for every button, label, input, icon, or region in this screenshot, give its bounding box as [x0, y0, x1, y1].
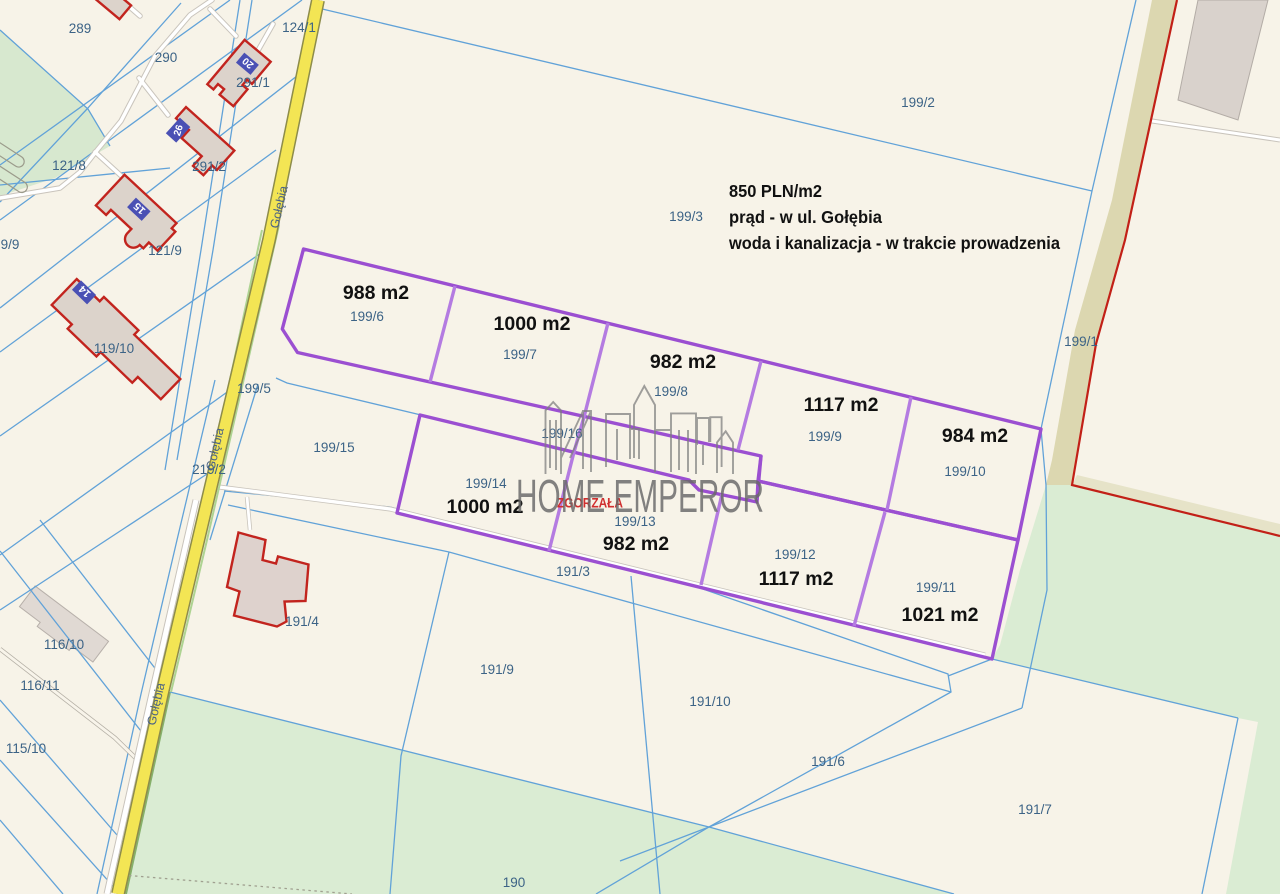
- svg-text:199/6: 199/6: [350, 309, 384, 324]
- svg-text:190: 190: [503, 875, 526, 890]
- svg-text:1117 m2: 1117 m2: [759, 568, 834, 590]
- svg-text:199/14: 199/14: [465, 476, 507, 491]
- svg-text:191/3: 191/3: [556, 564, 590, 579]
- svg-text:199/11: 199/11: [916, 580, 956, 595]
- svg-text:199/12: 199/12: [774, 547, 815, 562]
- svg-text:982 m2: 982 m2: [603, 533, 669, 555]
- svg-text:191/10: 191/10: [689, 694, 730, 709]
- svg-text:199/10: 199/10: [944, 464, 985, 479]
- svg-text:850 PLN/m2: 850 PLN/m2: [729, 181, 822, 201]
- svg-text:1000 m2: 1000 m2: [447, 496, 524, 518]
- svg-text:291/1: 291/1: [236, 75, 270, 90]
- svg-text:115/10: 115/10: [6, 741, 46, 756]
- svg-text:191/9: 191/9: [480, 662, 514, 677]
- svg-text:119/10: 119/10: [94, 341, 134, 356]
- svg-text:199/5: 199/5: [237, 381, 271, 396]
- svg-text:1000 m2: 1000 m2: [494, 313, 571, 335]
- svg-text:199/16: 199/16: [541, 426, 582, 441]
- svg-text:199/3: 199/3: [669, 209, 703, 224]
- svg-text:199/15: 199/15: [313, 440, 354, 455]
- svg-text:1021 m2: 1021 m2: [902, 604, 979, 626]
- svg-text:116/10: 116/10: [44, 637, 84, 652]
- svg-text:HOME EMPEROR: HOME EMPEROR: [516, 470, 764, 522]
- svg-text:124/1: 124/1: [282, 20, 316, 35]
- svg-text:982 m2: 982 m2: [650, 351, 716, 373]
- svg-text:289: 289: [69, 21, 92, 36]
- svg-text:199/1: 199/1: [1064, 334, 1098, 349]
- svg-text:199/7: 199/7: [503, 347, 537, 362]
- svg-text:290: 290: [155, 50, 178, 65]
- svg-text:121/8: 121/8: [52, 158, 86, 173]
- svg-text:191/7: 191/7: [1018, 802, 1052, 817]
- svg-text:121/9: 121/9: [148, 243, 182, 258]
- svg-text:prąd - w ul. Gołębia: prąd - w ul. Gołębia: [729, 207, 882, 227]
- svg-text:199/8: 199/8: [654, 384, 688, 399]
- svg-text:116/11: 116/11: [20, 678, 59, 693]
- svg-text:199/2: 199/2: [901, 95, 935, 110]
- svg-text:291/2: 291/2: [192, 159, 226, 174]
- svg-text:9/9: 9/9: [1, 237, 20, 252]
- svg-text:984 m2: 984 m2: [942, 425, 1008, 447]
- svg-text:199/9: 199/9: [808, 429, 842, 444]
- svg-text:191/4: 191/4: [285, 614, 319, 629]
- svg-text:1117 m2: 1117 m2: [804, 394, 879, 416]
- svg-text:191/6: 191/6: [811, 754, 845, 769]
- svg-text:988 m2: 988 m2: [343, 282, 409, 304]
- svg-text:woda i kanalizacja - w trakcie: woda i kanalizacja - w trakcie prowadzen…: [728, 233, 1060, 253]
